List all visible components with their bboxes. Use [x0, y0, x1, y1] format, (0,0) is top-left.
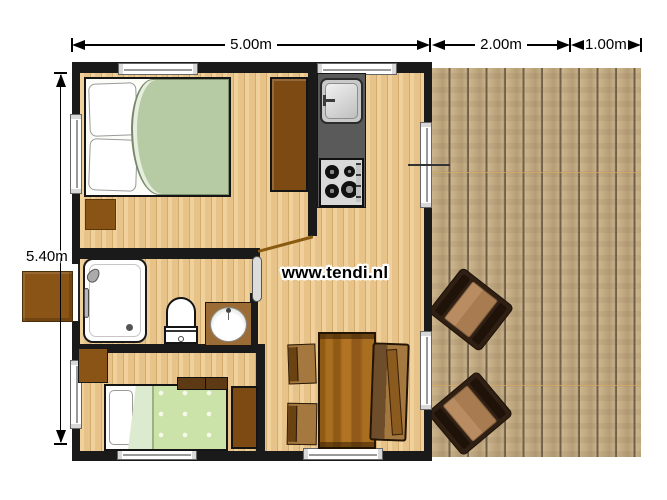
dining-chair-left-1 [287, 344, 316, 385]
arrow-left-icon [571, 40, 584, 50]
nightstand [78, 348, 108, 383]
bedside-mat [85, 199, 116, 230]
shower-drain [126, 324, 133, 331]
dining-table [318, 332, 376, 449]
gas-stove [319, 158, 364, 207]
dimension-label: 2.00m [475, 38, 527, 52]
shower-rail [84, 288, 89, 318]
floor-plan-canvas: 5.00m 2.00m 1.00m 5.40m www.tendi.nl [0, 0, 667, 500]
dimension-top-5m: 5.00m [72, 38, 430, 52]
dimension-line [277, 44, 417, 46]
dimension-tick [569, 38, 571, 52]
wardrobe-large-bedroom [270, 77, 308, 192]
bathroom-door-leaf [252, 256, 262, 302]
double-bed [84, 77, 231, 197]
faucet-icon [323, 99, 335, 102]
window-top-bedroom [118, 63, 198, 75]
dimension-line [445, 44, 475, 46]
wall-kitchen-divider [308, 73, 317, 236]
burner [325, 165, 339, 179]
kitchen-sink [320, 78, 363, 124]
flush-button [178, 336, 184, 342]
stove-controls [356, 163, 361, 202]
dimension-tick [640, 38, 642, 52]
wardrobe-small-bedroom [231, 386, 258, 449]
dimension-label-side: 5.40m [26, 248, 68, 265]
dimension-line [85, 44, 225, 46]
burner [325, 184, 339, 198]
headboard-shelf [177, 377, 228, 390]
deck-seam-line [432, 172, 641, 173]
single-bed [104, 384, 228, 451]
duvet-dotted [152, 386, 226, 449]
arrow-right-icon [628, 40, 641, 50]
window-left-bedroom [70, 114, 82, 194]
dimension-label: 1.00m [584, 38, 628, 52]
dimension-tick [429, 38, 431, 52]
arrow-left-icon [72, 40, 85, 50]
pillow [88, 138, 138, 192]
duvet [131, 79, 229, 195]
dimension-tick [54, 443, 67, 445]
dimension-top-2m: 2.00m [432, 38, 570, 52]
washbasin-vanity [205, 302, 252, 346]
dining-chair-right [369, 342, 409, 441]
dimension-line [527, 44, 557, 46]
window-bottom-dining [303, 448, 383, 460]
toilet-cistern [164, 326, 198, 344]
basin-faucet-icon [226, 308, 231, 313]
arrow-down-icon [56, 430, 66, 443]
door-handle-line [408, 164, 450, 166]
dimension-label: 5.00m [225, 38, 277, 52]
dimension-tick [71, 38, 73, 52]
arrow-left-icon [432, 40, 445, 50]
door-right-lower-deck [420, 331, 432, 410]
dining-chair-left-2 [287, 403, 318, 446]
burner [344, 166, 355, 177]
dimension-top-1m: 1.00m [571, 38, 640, 52]
watermark-url: www.tendi.nl [277, 263, 393, 283]
